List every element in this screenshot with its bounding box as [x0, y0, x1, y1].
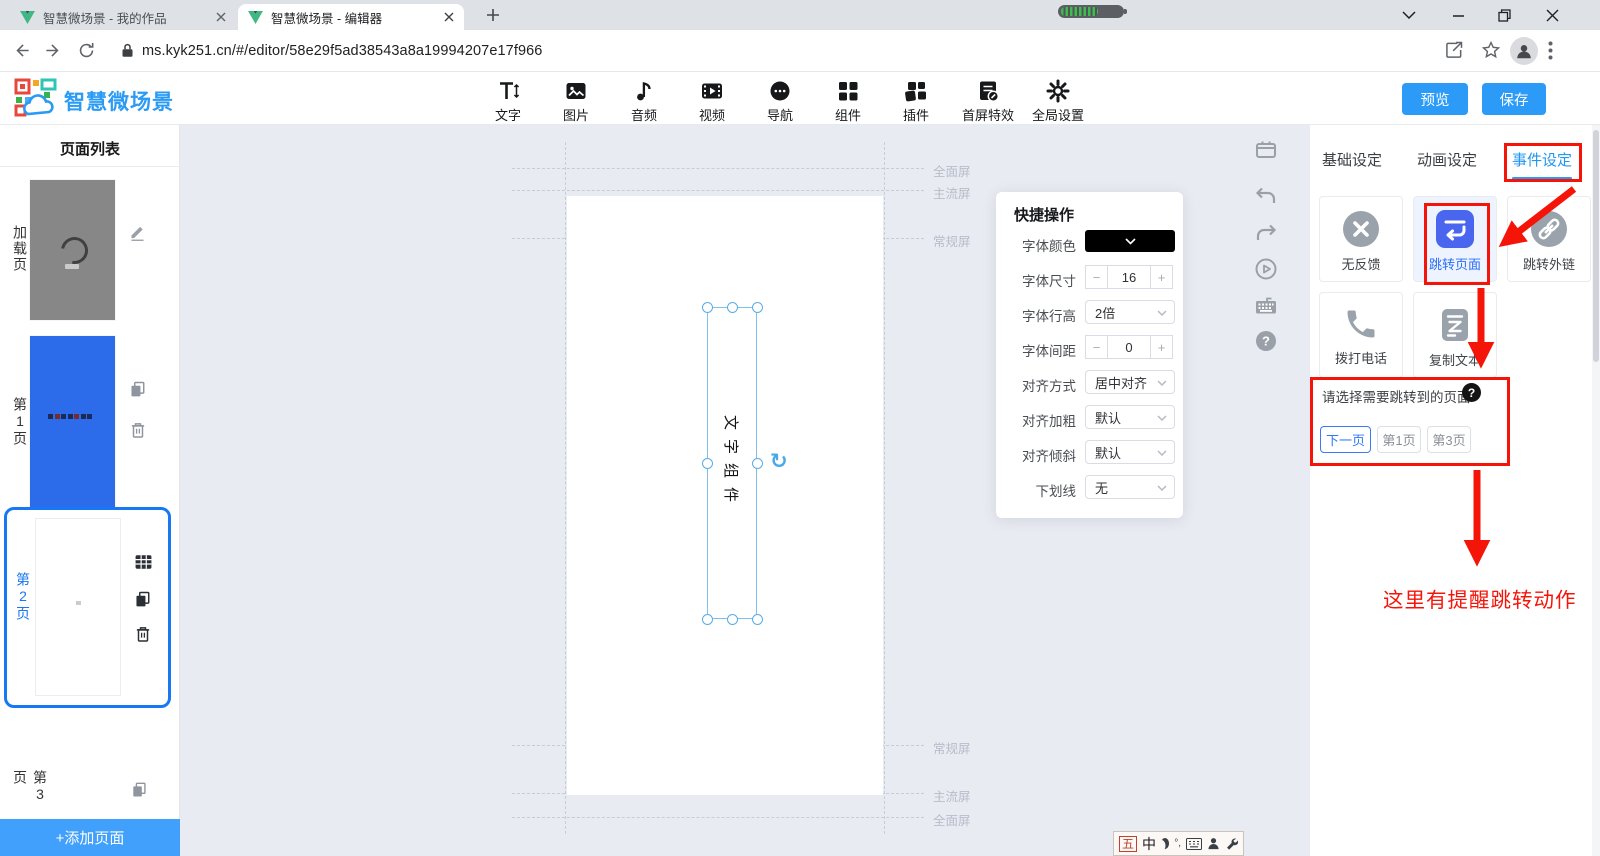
tool-image[interactable]: 图片 [538, 79, 614, 124]
increment-button[interactable]: + [1150, 335, 1173, 359]
browser-menu-icon[interactable] [1548, 41, 1553, 60]
text-icon [496, 79, 520, 103]
tool-label: 组件 [810, 105, 886, 124]
resize-handle-ne[interactable] [752, 302, 763, 313]
chevron-down-icon [1157, 450, 1167, 456]
browser-tab-my-works[interactable]: 智慧微场景 - 我的作品 [10, 4, 236, 30]
tool-video[interactable]: 视频 [674, 79, 750, 124]
underline-label: 下划线 [996, 480, 1076, 500]
tab-title: 智慧微场景 - 我的作品 [43, 8, 208, 27]
select-value: 居中对齐 [1095, 373, 1147, 392]
guide-line [512, 190, 924, 191]
bookmark-star-icon[interactable] [1481, 40, 1501, 60]
jump-option-page-1[interactable]: 第1页 [1377, 426, 1421, 453]
vue-favicon [20, 11, 35, 24]
screen-effects-icon [976, 79, 1000, 103]
line-height-label: 字体行高 [996, 305, 1076, 325]
screen: 智慧微场景 - 我的作品 智慧微场景 - 编辑器 [0, 0, 1600, 856]
link-icon [1530, 210, 1568, 248]
guide-label-mainstream: 主流屏 [933, 183, 993, 202]
vertical-guide-left [565, 142, 566, 834]
redo-icon[interactable] [1254, 221, 1278, 245]
page-item-3[interactable]: 第3页 [10, 770, 50, 819]
phone-icon [1343, 306, 1379, 342]
italic-select[interactable]: 默认 [1085, 440, 1175, 464]
active-tab-underline [1512, 177, 1572, 180]
annotation-text: 这里有提醒跳转动作 [1383, 583, 1577, 613]
thumb-text-marks [48, 414, 92, 419]
window-box-icon[interactable] [1254, 138, 1278, 162]
resize-handle-sw[interactable] [702, 614, 713, 625]
letter-spacing-value[interactable]: 0 [1107, 335, 1151, 359]
window-chevron-icon[interactable] [1398, 4, 1420, 26]
tool-label: 图片 [538, 105, 614, 124]
tool-label: 导航 [742, 105, 818, 124]
x-circle-icon [1342, 210, 1380, 248]
window-restore-button[interactable] [1493, 4, 1515, 26]
delete-page-icon[interactable] [134, 625, 152, 643]
ime-mode-indicator[interactable]: 中 [1142, 837, 1156, 851]
resize-handle-nw[interactable] [702, 302, 713, 313]
italic-label: 对齐倾斜 [996, 445, 1076, 465]
reload-icon[interactable] [77, 41, 96, 60]
new-tab-button[interactable] [486, 8, 500, 22]
lock-icon[interactable] [120, 42, 135, 59]
select-value: 2倍 [1095, 303, 1115, 322]
grid-layout-icon[interactable] [134, 553, 153, 571]
loading-progress-text [65, 264, 79, 269]
line-height-select[interactable]: 2倍 [1085, 300, 1175, 324]
gear-icon [1046, 79, 1070, 103]
page-label-loading: 加载页 [10, 225, 30, 273]
underline-select[interactable]: 无 [1085, 475, 1175, 499]
bold-label: 对齐加粗 [996, 410, 1076, 430]
page-thumb-2[interactable] [36, 519, 120, 695]
tool-component[interactable]: 组件 [810, 79, 886, 124]
page-label-1: 第1页 [10, 397, 30, 447]
font-size-stepper: − 16 + [1085, 265, 1173, 289]
app-logo-icon [14, 78, 58, 120]
window-minimize-button[interactable] [1447, 4, 1469, 26]
window-close-button[interactable] [1541, 4, 1563, 26]
copy-page-icon[interactable] [131, 781, 148, 798]
guide-label-mainstream-bottom: 主流屏 [933, 786, 993, 805]
svg-text:?: ? [1262, 334, 1270, 349]
event-card-call-phone[interactable]: 拨打电话 [1319, 292, 1403, 378]
save-button[interactable]: 保存 [1482, 83, 1546, 115]
chevron-down-icon [1157, 310, 1167, 316]
page-list-sidebar: 页面列表 加载页 第1页 第2页 [0, 125, 180, 856]
guide-label-regular: 常规屏 [933, 231, 993, 250]
page-list-title: 页面列表 [0, 138, 180, 159]
resize-handle-e[interactable] [752, 458, 763, 469]
select-value: 默认 [1095, 408, 1121, 427]
event-card-copy-text[interactable]: 复制文本 [1413, 292, 1497, 378]
decrement-button[interactable]: − [1085, 335, 1108, 359]
divider [0, 166, 180, 167]
app-logo-text: 智慧微场景 [64, 86, 174, 116]
battery-indicator [1058, 5, 1124, 18]
guide-label-fullscreen-bottom: 全面屏 [933, 810, 993, 829]
copy-page-icon[interactable] [134, 590, 152, 608]
font-size-value[interactable]: 16 [1107, 265, 1151, 289]
play-preview-icon[interactable] [1254, 257, 1278, 281]
jump-page-icon [1436, 210, 1474, 248]
forward-icon[interactable] [44, 41, 63, 60]
ime-toolbar: 五 中 °, [1113, 831, 1244, 856]
copy-page-icon[interactable] [129, 380, 147, 398]
chevron-down-icon [1157, 415, 1167, 421]
resize-handle-w[interactable] [702, 458, 713, 469]
event-card-label: 复制文本 [1414, 350, 1496, 369]
url-text[interactable]: ms.kyk251.cn/#/editor/58e29f5ad38543a8a1… [142, 43, 542, 59]
tool-label: 音频 [606, 105, 682, 124]
components-grid-icon [836, 79, 860, 103]
keyboard-icon[interactable] [1254, 293, 1278, 317]
tab-close-icon[interactable] [444, 12, 454, 22]
event-card-label: 拨打电话 [1320, 348, 1402, 367]
jump-section-title: 请选择需要跳转到的页面 [1322, 386, 1471, 406]
browser-tab-bar: 智慧微场景 - 我的作品 智慧微场景 - 编辑器 [0, 0, 1600, 30]
guide-line [512, 168, 924, 169]
guide-label-fullscreen: 全面屏 [933, 161, 993, 180]
quick-actions-panel: 快捷操作 字体颜色 字体尺寸 − 16 + 字体行高 2倍 字体间距 [996, 192, 1183, 518]
settings-panel: 基础设定 动画设定 事件设定 无反馈 跳转页面 跳转外链 拨打电话 复制文本 请… [1310, 125, 1592, 856]
tool-plugin[interactable]: 插件 [878, 79, 954, 124]
jump-option-next-page[interactable]: 下一页 [1320, 426, 1371, 453]
edit-pencil-icon[interactable] [128, 223, 147, 242]
vue-favicon [248, 11, 263, 24]
tab-basic-settings[interactable]: 基础设定 [1322, 149, 1382, 170]
guide-label-regular-bottom: 常规屏 [933, 738, 993, 757]
tool-label: 全局设置 [1020, 105, 1096, 124]
event-card-jump-page[interactable]: 跳转页面 [1413, 196, 1497, 282]
jump-option-page-3[interactable]: 第3页 [1427, 426, 1471, 453]
ime-keyboard-icon[interactable] [1186, 838, 1202, 850]
select-value: 默认 [1095, 443, 1121, 462]
resize-handle-s[interactable] [727, 614, 738, 625]
font-color-picker[interactable] [1085, 230, 1175, 252]
letter-spacing-label: 字体间距 [996, 340, 1076, 360]
share-icon[interactable] [1444, 40, 1464, 60]
resize-handle-n[interactable] [727, 302, 738, 313]
tab-event-settings[interactable]: 事件设定 [1512, 149, 1572, 170]
question-circle-icon[interactable]: ? [1462, 383, 1481, 402]
delete-page-icon[interactable] [129, 421, 147, 439]
tab-title: 智慧微场景 - 编辑器 [271, 8, 436, 27]
image-icon [564, 79, 588, 103]
text-component[interactable]: 文字组件 [721, 383, 743, 543]
chevron-down-icon [1157, 485, 1167, 491]
tool-screen-effects[interactable]: 首屏特效 [950, 79, 1026, 124]
tool-audio[interactable]: 音频 [606, 79, 682, 124]
tool-text[interactable]: 文字 [470, 79, 546, 124]
back-icon[interactable] [12, 41, 31, 60]
event-card-label: 无反馈 [1320, 254, 1402, 273]
rotate-icon[interactable]: ↻ [770, 449, 788, 474]
ime-scheme-indicator[interactable]: 五 [1119, 836, 1137, 852]
thumb-mark [76, 601, 81, 605]
plugin-icon [904, 79, 928, 103]
ime-user-icon[interactable] [1207, 837, 1220, 850]
ime-wrench-icon[interactable] [1225, 837, 1238, 850]
event-card-label: 跳转外链 [1508, 254, 1590, 273]
vertical-guide-right [884, 142, 885, 834]
browser-tab-editor[interactable]: 智慧微场景 - 编辑器 [238, 4, 464, 30]
decrement-button[interactable]: − [1085, 265, 1108, 289]
increment-button[interactable]: + [1150, 265, 1173, 289]
music-note-icon [632, 79, 656, 103]
help-icon[interactable]: ? [1254, 329, 1278, 353]
guide-line [512, 817, 924, 818]
quick-panel-title: 快捷操作 [1014, 204, 1074, 225]
preview-button[interactable]: 预览 [1402, 83, 1468, 115]
chevron-down-icon [1157, 380, 1167, 386]
align-select[interactable]: 居中对齐 [1085, 370, 1175, 394]
video-icon [700, 79, 724, 103]
event-card-label: 跳转页面 [1414, 254, 1496, 273]
page-label-3: 第3页 [10, 770, 50, 819]
tool-global-settings[interactable]: 全局设置 [1020, 79, 1096, 124]
page-thumb-loading[interactable] [30, 180, 115, 320]
tool-label: 文字 [470, 105, 546, 124]
page-label-2: 第2页 [13, 572, 33, 622]
undo-icon[interactable] [1254, 184, 1278, 208]
nav-dots-icon [768, 79, 792, 103]
add-page-button[interactable]: +添加页面 [0, 819, 180, 856]
tab-close-icon[interactable] [216, 12, 226, 22]
page-thumb-1[interactable] [30, 336, 115, 508]
browser-avatar[interactable] [1510, 37, 1538, 65]
event-card-external-link[interactable]: 跳转外链 [1507, 196, 1591, 282]
panel-scrollbar-thumb[interactable] [1593, 130, 1599, 362]
svg-text:?: ? [1468, 386, 1475, 400]
letter-spacing-stepper: − 0 + [1085, 335, 1173, 359]
resize-handle-se[interactable] [752, 614, 763, 625]
font-color-label: 字体颜色 [996, 235, 1076, 255]
tool-label: 视频 [674, 105, 750, 124]
tool-label: 首屏特效 [950, 105, 1026, 124]
copy-text-icon [1436, 306, 1474, 344]
tool-nav[interactable]: 导航 [742, 79, 818, 124]
select-value: 无 [1095, 478, 1108, 497]
event-card-no-feedback[interactable]: 无反馈 [1319, 196, 1403, 282]
bold-select[interactable]: 默认 [1085, 405, 1175, 429]
align-label: 对齐方式 [996, 375, 1076, 395]
ime-halfwidth-moon-icon[interactable] [1161, 838, 1169, 849]
tab-animation-settings[interactable]: 动画设定 [1417, 149, 1477, 170]
tool-label: 插件 [878, 105, 954, 124]
ime-punctuation-icon[interactable]: °, [1174, 838, 1181, 849]
font-size-label: 字体尺寸 [996, 270, 1076, 290]
